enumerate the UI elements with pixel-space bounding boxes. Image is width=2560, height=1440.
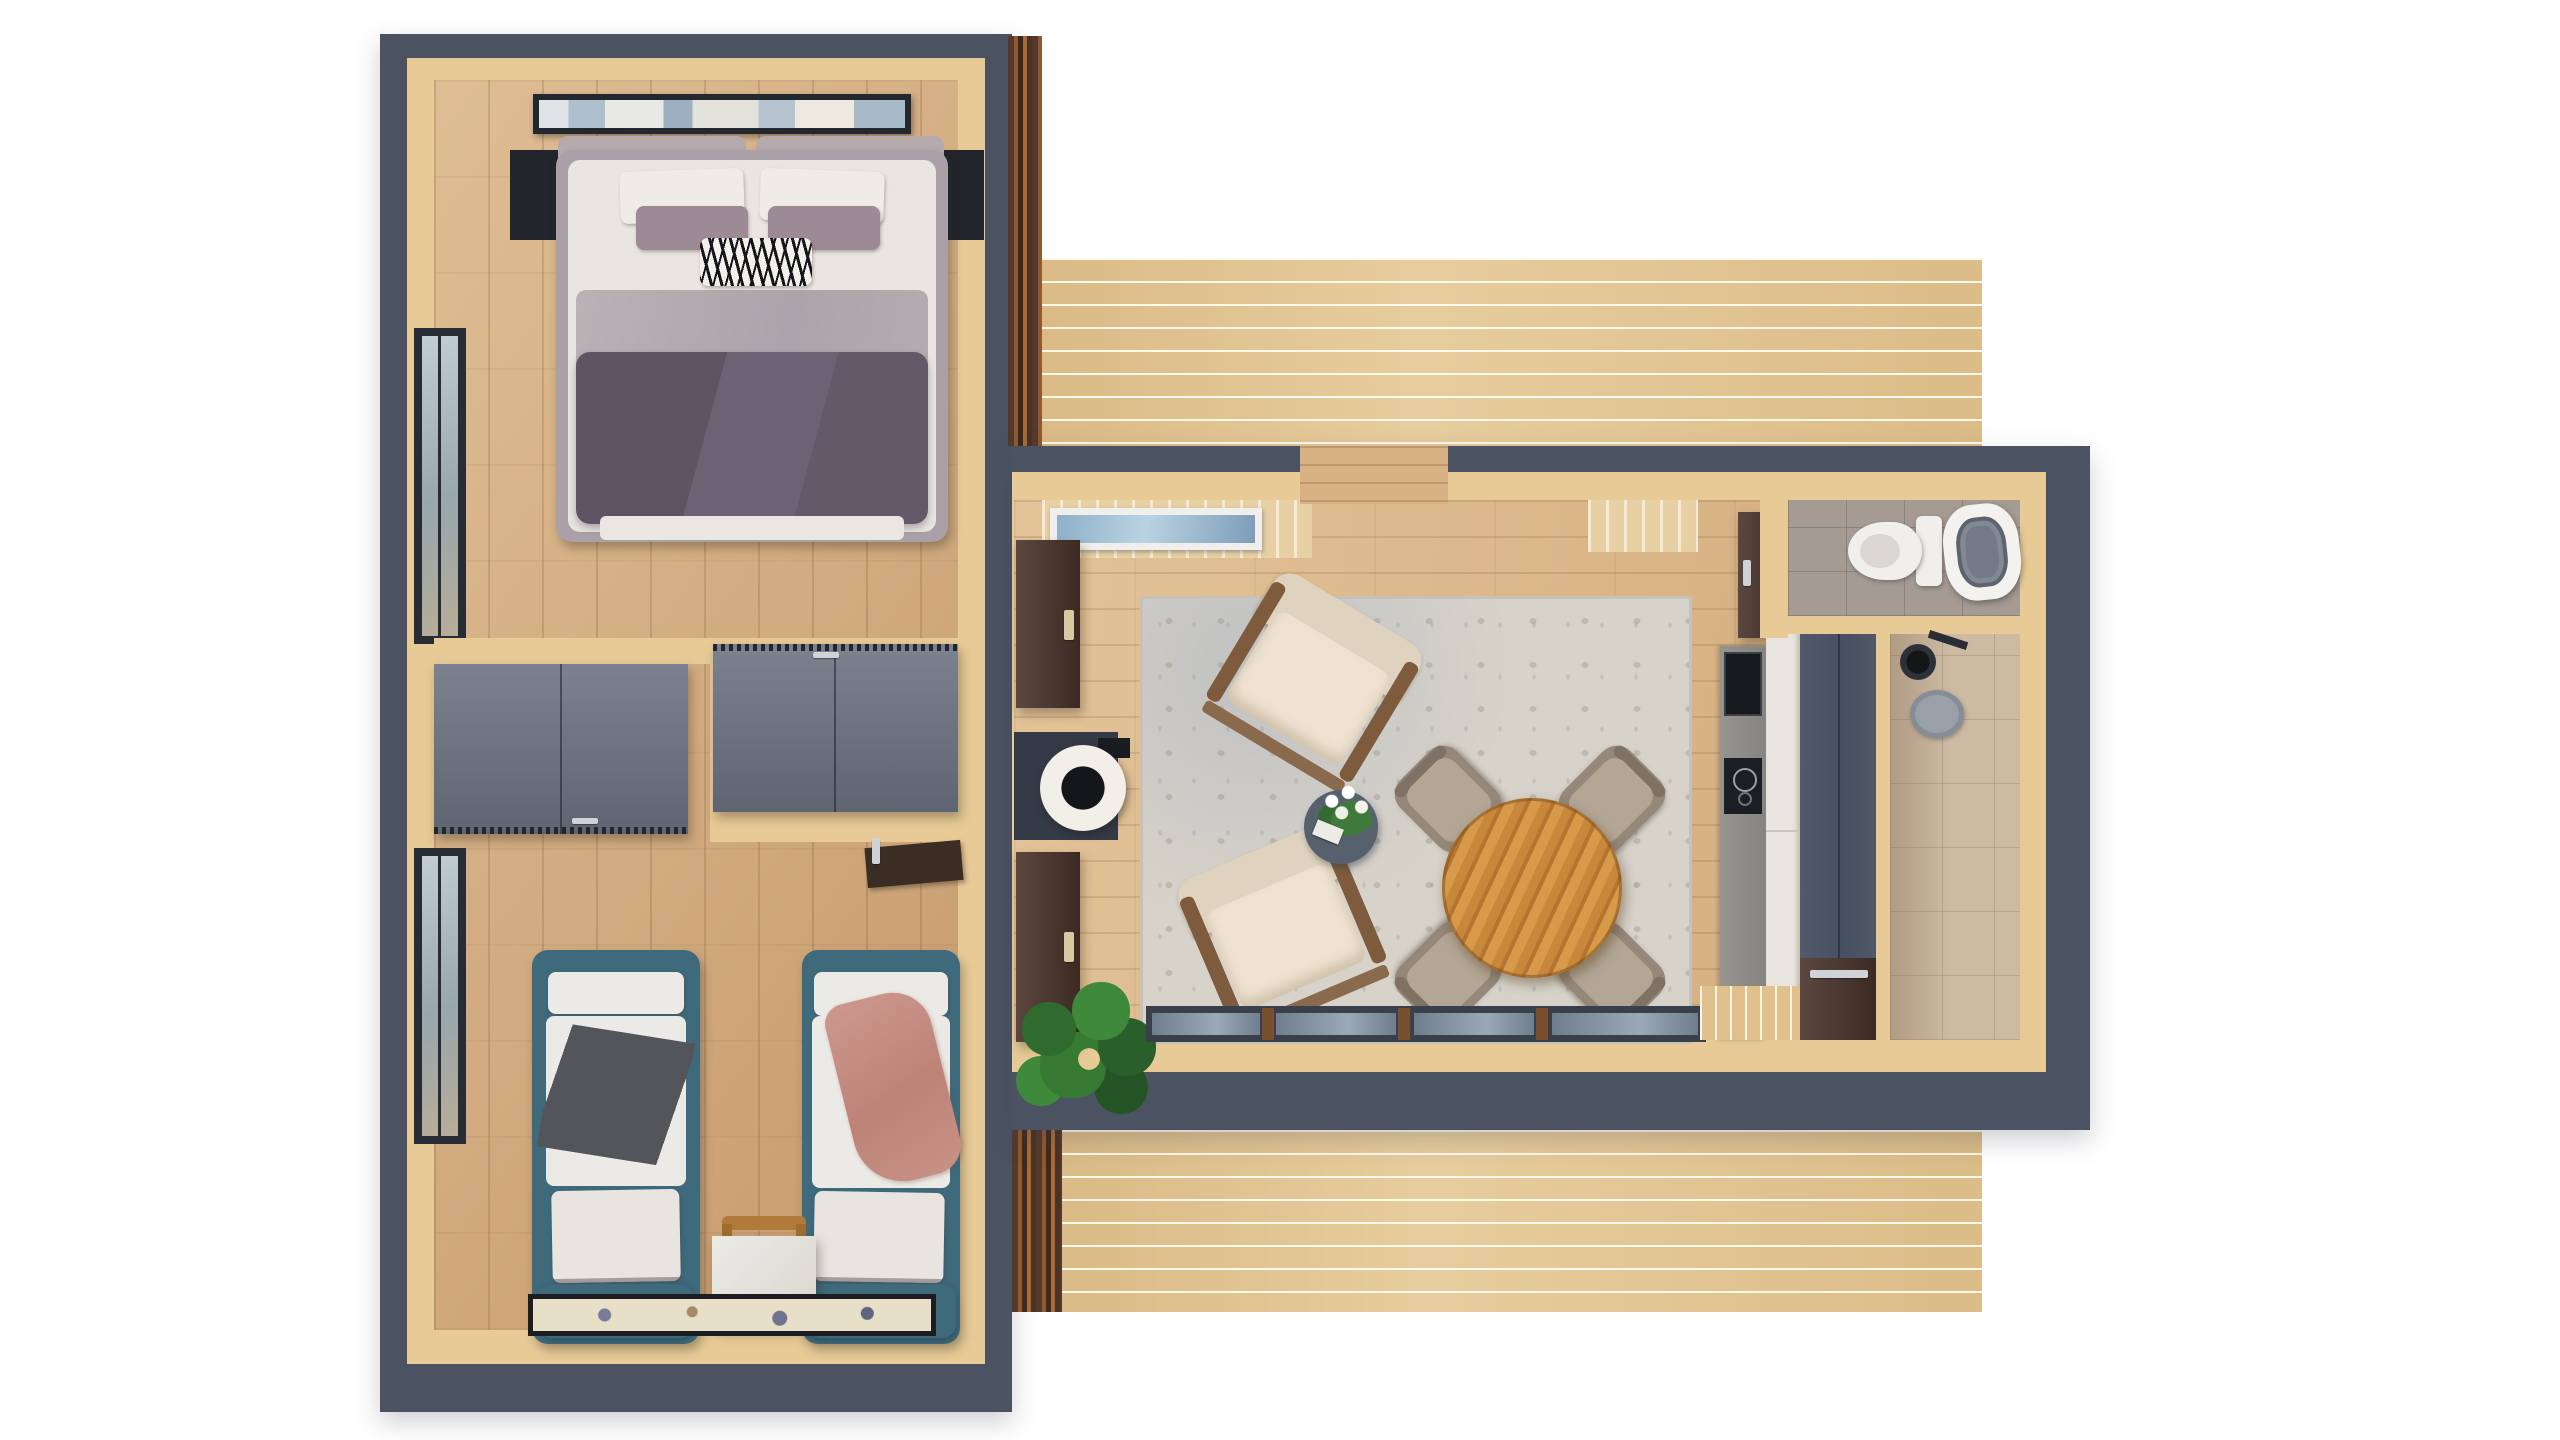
built-in-oven xyxy=(1724,652,1762,716)
entry-doorway xyxy=(1300,446,1448,504)
wooden-chair-back xyxy=(722,1216,806,1230)
wood-stove xyxy=(1040,745,1126,831)
wall-art xyxy=(533,94,911,134)
tall-cabinet-lower xyxy=(1016,852,1080,1042)
mattress-foot-edge xyxy=(600,516,904,540)
toilet xyxy=(1848,522,1922,580)
kitchen-white-fronts xyxy=(1766,630,1800,1040)
wardrobe-cabinet-right xyxy=(713,644,958,812)
floor-plan-render: { "scene": { "title": "Top-down 3D floor… xyxy=(0,0,2560,1440)
single-bed-left-top-pillow xyxy=(548,972,684,1014)
potted-plant xyxy=(1078,1048,1100,1070)
wall-art-image xyxy=(539,100,905,128)
kitchen-tall-unit xyxy=(1800,618,1878,958)
induction-hob xyxy=(1724,758,1762,814)
shower-floor xyxy=(1890,634,2020,1040)
master-bedroom-window xyxy=(414,328,466,644)
tall-cabinet-upper xyxy=(1016,540,1080,708)
bathroom-divider-wall xyxy=(1788,616,2020,634)
kitchen-lower-door xyxy=(1800,958,1878,1040)
entry-porch xyxy=(1700,986,1800,1040)
twin-bedroom-window xyxy=(414,848,466,1144)
single-bed-right-pillows xyxy=(813,1191,945,1283)
shower-stool xyxy=(1910,690,1964,738)
clerestory-window xyxy=(1050,508,1262,550)
duvet-purple xyxy=(576,352,928,524)
shower-head xyxy=(1900,644,1936,680)
single-bed-left-pillows xyxy=(551,1189,681,1283)
runner-rug xyxy=(528,1294,936,1336)
desk-bracket xyxy=(872,838,880,864)
wc-wall xyxy=(1760,500,1788,638)
ceiling-slats-kitchen xyxy=(1588,500,1698,552)
terrace-south xyxy=(1062,1130,1982,1312)
pillow-zebra xyxy=(700,238,812,286)
dining-table xyxy=(1442,798,1622,978)
gray-throw xyxy=(537,1022,695,1168)
siding-strip-north xyxy=(1008,36,1042,446)
shower-wall xyxy=(1876,634,1890,1040)
sliding-glass-doors xyxy=(1146,1006,1706,1042)
terrace-north xyxy=(1042,258,1982,446)
wardrobe-cabinet-left xyxy=(434,664,688,834)
